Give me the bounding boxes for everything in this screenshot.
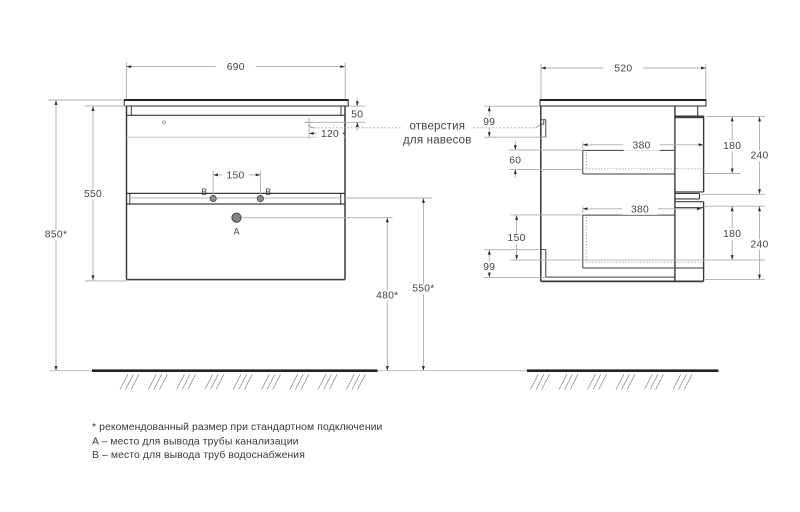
svg-text:50: 50 xyxy=(351,109,363,120)
svg-text:* рекомендованный размер при с: * рекомендованный размер при стандартном… xyxy=(92,422,383,433)
svg-text:60: 60 xyxy=(509,156,521,167)
svg-text:520: 520 xyxy=(614,64,632,75)
svg-text:240: 240 xyxy=(750,239,768,250)
svg-text:A: A xyxy=(233,227,239,237)
svg-text:550*: 550* xyxy=(412,284,434,295)
svg-text:99: 99 xyxy=(483,117,495,128)
svg-text:180: 180 xyxy=(723,229,741,240)
svg-text:для навесов: для навесов xyxy=(403,134,472,146)
svg-text:690: 690 xyxy=(227,62,245,73)
svg-text:отверстия: отверстия xyxy=(409,121,465,133)
svg-text:380: 380 xyxy=(633,140,651,151)
svg-text:A – место для вывода трубы кан: A – место для вывода трубы канализации xyxy=(92,435,299,447)
svg-text:480*: 480* xyxy=(376,290,398,301)
svg-text:150: 150 xyxy=(226,170,244,181)
svg-text:99: 99 xyxy=(483,262,495,273)
svg-text:380: 380 xyxy=(631,204,649,215)
svg-text:B: B xyxy=(265,187,271,197)
svg-text:B – место для вывода труб водо: B – место для вывода труб водоснабжения xyxy=(92,449,305,461)
svg-text:550: 550 xyxy=(84,189,102,200)
svg-text:180: 180 xyxy=(723,141,741,152)
svg-text:150: 150 xyxy=(508,233,526,244)
svg-text:B: B xyxy=(201,187,207,197)
svg-text:240: 240 xyxy=(750,151,768,162)
svg-text:850*: 850* xyxy=(45,230,67,241)
svg-text:120: 120 xyxy=(321,129,339,140)
